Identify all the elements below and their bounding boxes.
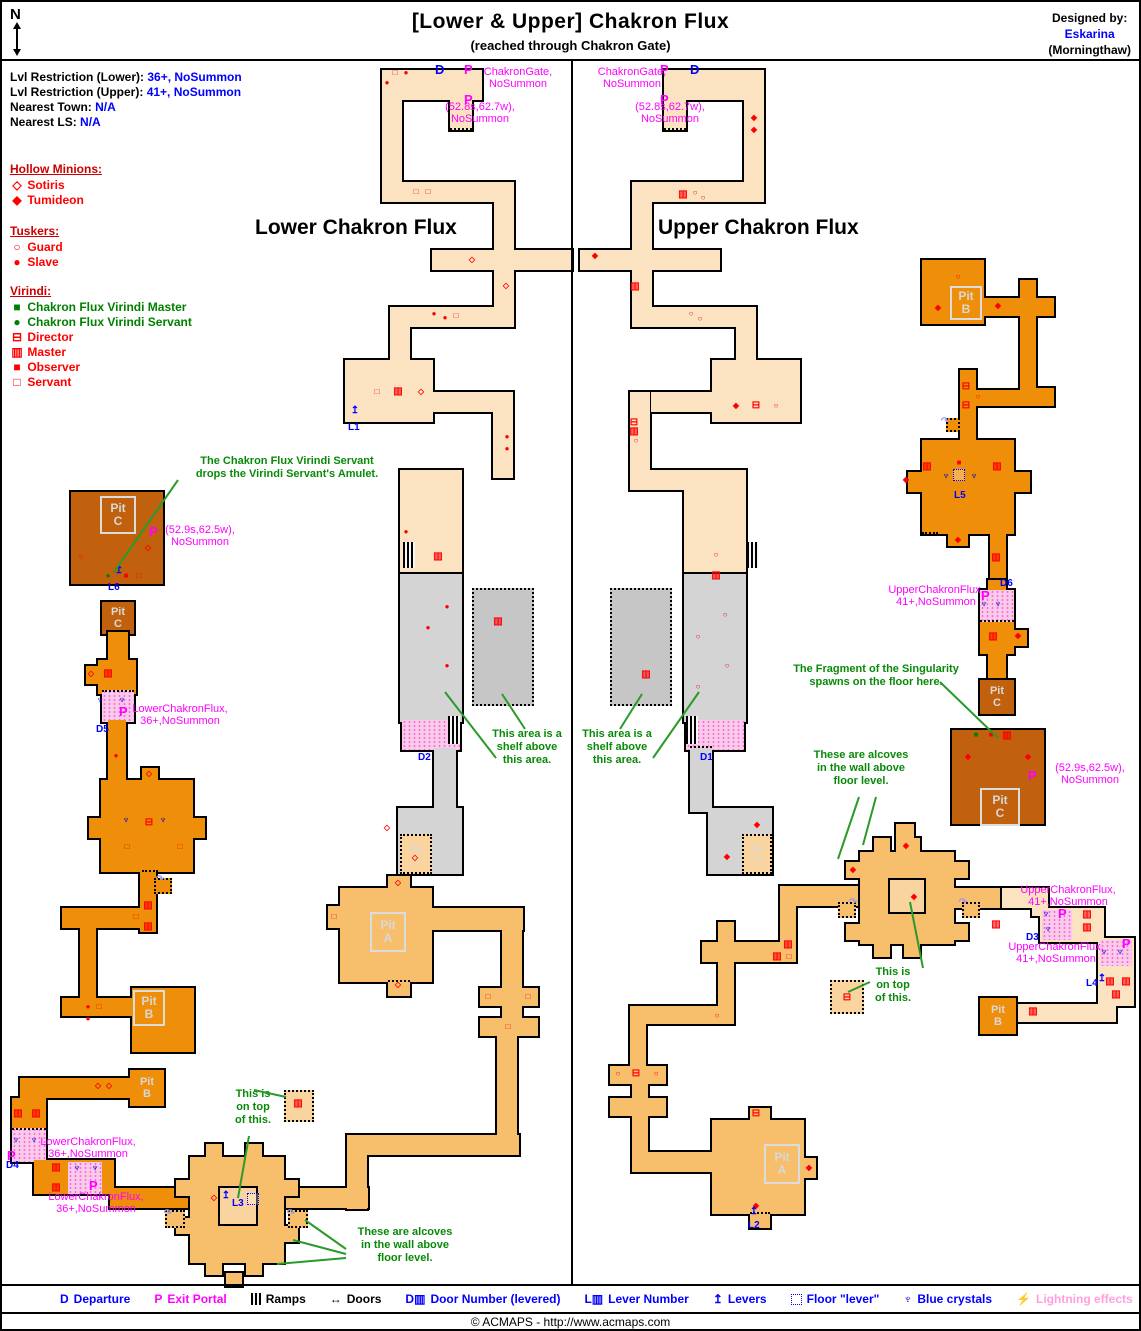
map-page: N [Lower & Upper] Chakron Flux (reached … (0, 0, 1141, 1331)
floor-lever-icon (247, 1193, 259, 1205)
exit-portal-marker: P (1058, 906, 1067, 921)
monster-marker: ▥ (772, 952, 781, 962)
pit-room-label: PitA (764, 1144, 800, 1184)
symbol-legend-label: Departure (74, 1292, 131, 1306)
map-floor-segment (684, 470, 746, 576)
lever-icon: ↥ (115, 566, 123, 576)
monster-marker: ○ (725, 662, 730, 670)
ramps-icon (251, 1293, 261, 1305)
monster-marker: ◇ (384, 824, 390, 832)
symbol-legend-item: ♆Blue crystals (903, 1292, 992, 1306)
monster-marker: ● (505, 433, 510, 441)
map-floor-segment (632, 307, 756, 327)
symbol-legend-label: Lever Number (608, 1292, 689, 1306)
monster-marker: ● (404, 528, 409, 536)
map-id-label: D4 (6, 1160, 19, 1171)
footer-divider-bottom (2, 1312, 1139, 1314)
monster-marker: ◇ (469, 256, 475, 264)
symbol-legend-label: Exit Portal (167, 1292, 226, 1306)
door-dots (664, 128, 686, 130)
blue-crystal-icon: ♆ (96, 696, 104, 707)
map-annotation: The Chakron Flux Virindi Servantdrops th… (180, 455, 394, 481)
monster-marker: ◇ (395, 879, 401, 887)
map-id-label: L3 (232, 1198, 244, 1209)
map-id-label: L2 (748, 1220, 760, 1231)
monster-marker: □ (486, 993, 491, 1001)
monster-marker: ▥ (1082, 923, 1091, 933)
door-dots (102, 690, 134, 692)
monster-marker: ● (443, 314, 448, 322)
ramp-curl-icon: ↷ (164, 1209, 172, 1219)
monster-marker: ⊟ (632, 1069, 640, 1079)
door-number-levered--icon: D▥ (405, 1292, 425, 1306)
monster-marker: ○ (693, 189, 698, 197)
monster-marker: ▥ (1121, 977, 1130, 987)
symbol-legend-item: ↔Doors (330, 1292, 382, 1306)
monster-marker: ▥ (988, 632, 997, 642)
symbol-legend-item: D▥Door Number (levered) (405, 1292, 560, 1306)
map-floor-segment (80, 908, 96, 1004)
ramp-curl-icon: ↷ (156, 875, 164, 885)
monster-marker: ▥ (1111, 990, 1120, 1000)
monster-marker: □ (178, 843, 183, 851)
monster-marker: □ (375, 388, 380, 396)
monster-marker: ○ (701, 194, 706, 202)
map-annotation: These are alcovesin the wall abovefloor … (802, 749, 920, 788)
monster-marker: ● (432, 310, 437, 318)
blue-crystal-icon: ♆ (12, 1136, 20, 1147)
door-dots (690, 746, 712, 748)
map-floor-segment (191, 818, 205, 838)
monster-marker: ▥ (1028, 1007, 1037, 1017)
ramp-curl-icon: ↷ (959, 898, 967, 908)
monster-marker: ● (86, 1015, 91, 1023)
monster-marker: ○ (696, 683, 701, 691)
monster-marker: ▥ (630, 282, 639, 292)
monster-marker: ▥ (922, 462, 931, 472)
monster-marker: ⊟ (752, 401, 760, 411)
map-floor-segment (952, 862, 968, 878)
blue-crystal-icon: ♆ (1042, 910, 1050, 921)
blue-crystals-icon: ♆ (903, 1292, 912, 1306)
monster-marker: □ (393, 69, 398, 77)
monster-marker: ▥ (992, 462, 1001, 472)
monster-marker: ◇ (211, 1194, 217, 1202)
map-annotation: This area is ashelf abovethis area. (483, 728, 571, 767)
map-floor-segment (89, 818, 103, 838)
blue-crystal-icon: ♆ (1044, 925, 1052, 936)
map-id-label: L5 (954, 490, 966, 501)
map-floor-segment (632, 1152, 724, 1172)
monster-marker: ⊟ (962, 401, 970, 411)
monster-marker: ● (505, 445, 510, 453)
monster-marker: ⊟ (145, 818, 153, 828)
symbol-legend-label: Floor "lever" (807, 1292, 880, 1306)
monster-marker: ○ (774, 402, 779, 410)
portal-label: UpperChakronFlux,41+,NoSummon (1020, 884, 1116, 908)
floor-lever-icon (953, 469, 965, 481)
door-dots (142, 870, 158, 872)
monster-marker: ■ (989, 731, 994, 739)
exit-portal-marker: P (464, 62, 473, 77)
pit-room-label: PitC (100, 496, 136, 534)
map-floor-segment (952, 924, 968, 940)
symbol-legend-item: ⚡Lightning effects (1016, 1292, 1133, 1306)
monster-marker: ◆ (903, 476, 909, 484)
pit-room-label: PitC (980, 680, 1014, 714)
monster-marker: ■ (974, 731, 979, 739)
monster-marker: ◆ (592, 252, 598, 260)
map-floor-segment (390, 327, 410, 362)
map-floor-segment (431, 392, 495, 412)
map-divider (571, 59, 573, 1284)
pit-room-label: PitB (130, 1070, 164, 1106)
departure-icon: D (60, 1292, 69, 1306)
map-annotation: This ison topof this. (228, 1088, 278, 1127)
symbol-legend-item: PExit Portal (154, 1292, 226, 1306)
monster-marker: ◇ (106, 1082, 112, 1090)
symbol-legend-label: Blue crystals (917, 1292, 992, 1306)
pit-room-label: PitA (742, 838, 772, 872)
monster-marker: ◆ (995, 302, 1001, 310)
monster-marker: ▥ (13, 1109, 22, 1119)
copyright-text: © ACMAPS - http://www.acmaps.com (2, 1315, 1139, 1329)
monster-marker: □ (787, 953, 792, 961)
monster-marker: ▥ (293, 1099, 302, 1109)
monster-marker: ■ (124, 572, 129, 580)
map-floor-segment (908, 472, 924, 492)
monster-marker: ▥ (1105, 977, 1114, 987)
monster-marker: ● (86, 1003, 91, 1011)
blue-crystal-icon: ♆ (970, 472, 978, 483)
map-floor-segment (382, 182, 514, 202)
ramp-icon (747, 542, 759, 568)
monster-marker: □ (134, 913, 139, 921)
map-floor-segment (497, 1018, 517, 1150)
map-annotation: This area is ashelf abovethis area. (573, 728, 661, 767)
map-floor-segment (400, 574, 462, 722)
exit-portal-marker: P (149, 524, 158, 539)
monster-marker: □ (137, 572, 142, 580)
monster-marker: ▥ (711, 571, 720, 581)
map-id-label: D1 (700, 752, 713, 763)
monster-marker: ● (106, 572, 111, 580)
exit-portal-icon: P (154, 1292, 162, 1306)
symbol-legend-label: Doors (347, 1292, 382, 1306)
monster-marker: ▥ (641, 670, 650, 680)
door-dots (450, 128, 472, 130)
map-floor-segment (246, 1261, 262, 1275)
monster-marker: ▥ (1002, 731, 1011, 741)
ramp-icon (686, 716, 698, 744)
map-floor-segment (1014, 472, 1030, 492)
lever-icon: ↥ (1098, 974, 1106, 984)
monster-marker: ◇ (145, 544, 151, 552)
map-id-label: D6 (1000, 578, 1013, 589)
monster-marker: ○ (976, 393, 981, 401)
monster-marker: ▥ (143, 901, 152, 911)
map-annotation: This ison topof this. (866, 966, 920, 1005)
monster-marker: ◇ (88, 670, 94, 678)
departure-marker: D (690, 62, 699, 77)
lever-icon: ↥ (222, 1191, 230, 1201)
map-floor-segment (922, 440, 1014, 534)
monster-marker: ◆ (733, 402, 739, 410)
monster-marker: ○ (715, 1012, 720, 1020)
blue-crystal-icon: ♆ (122, 816, 130, 827)
portal-label: UpperChakronFlux,41+,NoSummon (888, 584, 984, 608)
monster-marker: ● (445, 603, 450, 611)
pit-room-label: PitB (980, 998, 1016, 1034)
map-floor-segment (246, 1144, 262, 1159)
monster-marker: ● (385, 79, 390, 87)
monster-marker: ○ (723, 611, 728, 619)
monster-marker: ● (426, 624, 431, 632)
map-floor-segment (282, 1180, 298, 1196)
blue-crystal-icon: ♆ (73, 1164, 81, 1175)
symbol-legend-label: Lightning effects (1036, 1292, 1133, 1306)
monster-marker: ◆ (751, 126, 757, 134)
map-floor-segment (712, 360, 800, 422)
door-dots (12, 1128, 46, 1130)
map-raised-area (472, 588, 534, 706)
map-raised-area (610, 588, 672, 706)
portal-label: (52.9s,62.5w),NoSummon (1042, 762, 1138, 786)
map-id-label: D2 (418, 752, 431, 763)
symbol-legend-label: Ramps (266, 1292, 306, 1306)
map-floor-segment (206, 1144, 222, 1159)
monster-marker: ◆ (806, 1164, 812, 1172)
monster-marker: ◆ (965, 753, 971, 761)
monster-marker: ◇ (418, 388, 424, 396)
portal-label: LowerChakronFlux,36+,NoSummon (132, 703, 228, 727)
monster-marker: ▥ (433, 552, 442, 562)
portal-label: LowerChakronFlux,36+,NoSummon (48, 1191, 144, 1215)
pit-room-label: PitB (133, 990, 165, 1026)
portal-label: UpperChakronFlux,41+,NoSummon (1008, 941, 1104, 965)
map-floor-segment (282, 1226, 298, 1242)
symbol-legend-bar: DDeparturePExit PortalRamps↔DoorsD▥Door … (2, 1286, 1139, 1312)
monster-marker: ▥ (143, 922, 152, 932)
symbol-legend-item: Ramps (251, 1292, 306, 1306)
monster-marker: ⊟ (962, 382, 970, 392)
map-floor-segment (702, 942, 796, 962)
monster-marker: □ (426, 188, 431, 196)
map-floor-segment (206, 1261, 222, 1275)
map-floor-segment (904, 942, 920, 957)
monster-marker: ○ (714, 551, 719, 559)
lever-icon: ↥ (750, 1207, 758, 1217)
blue-crystal-icon: ♆ (30, 1136, 38, 1147)
monster-marker: ■ (957, 459, 962, 467)
monster-marker: ◆ (850, 866, 856, 874)
monster-marker: ○ (696, 633, 701, 641)
monster-marker: ⊟ (843, 993, 851, 1003)
map-floor-segment (874, 838, 890, 854)
monster-marker: ◆ (935, 304, 941, 312)
map-floor-segment (502, 922, 522, 1032)
monster-marker: ● (114, 752, 119, 760)
monster-marker: ▥ (393, 387, 402, 397)
pit-room-label: PitC (102, 602, 134, 634)
map-floor-segment (874, 942, 890, 957)
monster-marker: ○ (654, 1070, 659, 1078)
monster-marker: ◆ (911, 893, 917, 901)
monster-marker: ○ (616, 1070, 621, 1078)
map-id-label: D5 (96, 724, 109, 735)
floor-lever-icon (791, 1294, 802, 1305)
map-annotation: These are alcovesin the wall abovefloor … (343, 1226, 467, 1265)
doors-icon: ↔ (330, 1292, 342, 1306)
levers-icon: ↥ (713, 1292, 723, 1306)
map-floor-segment (632, 182, 764, 202)
monster-marker: □ (454, 312, 459, 320)
monster-marker: ▥ (991, 920, 1000, 930)
monster-marker: ▥ (678, 190, 687, 200)
monster-marker: ▥ (31, 1109, 40, 1119)
exit-portal-marker: P (1122, 936, 1131, 951)
door-dots (980, 620, 1014, 622)
monster-marker: ○ (698, 315, 703, 323)
ramp-curl-icon: ↷ (941, 417, 949, 427)
monster-marker: ◆ (955, 536, 961, 544)
blue-crystal-icon: ♆ (994, 600, 1002, 611)
lightning-effects-icon: ⚡ (1016, 1292, 1031, 1306)
monster-marker: ◇ (146, 770, 152, 778)
monster-marker: ▥ (991, 553, 1000, 563)
map-annotation: The Fragment of the Singularityspawns on… (776, 663, 976, 689)
door-dots (980, 714, 1014, 716)
map-floor-segment (846, 924, 862, 940)
monster-marker: ◆ (903, 842, 909, 850)
map-floor-segment (347, 1135, 519, 1155)
symbol-legend-item: L▥Lever Number (584, 1292, 688, 1306)
map-floor-segment (736, 327, 756, 362)
monster-marker: ○ (689, 310, 694, 318)
monster-marker: ◇ (395, 981, 401, 989)
lever-icon: ↥ (351, 406, 359, 416)
blue-crystal-icon: ♆ (91, 1164, 99, 1175)
symbol-legend-item: DDeparture (60, 1292, 130, 1306)
monster-marker: ◆ (1015, 632, 1021, 640)
portal-label: LowerChakronFlux,36+,NoSummon (40, 1136, 136, 1160)
monster-marker: ▥ (103, 669, 112, 679)
symbol-legend-item: ↥Levers (713, 1292, 767, 1306)
monster-marker: □ (526, 993, 531, 1001)
symbol-legend-label: Levers (728, 1292, 767, 1306)
portal-label: (52.9s,62.5w),NoSummon (160, 524, 240, 548)
map-id-label: L6 (108, 582, 120, 593)
map-id-label: L1 (348, 422, 360, 433)
monster-marker: ▥ (783, 940, 792, 950)
map-floor-segment (176, 1180, 192, 1196)
ramp-curl-icon: ↷ (849, 898, 857, 908)
monster-marker: ○ (956, 273, 961, 281)
symbol-legend-item: Floor "lever" (791, 1292, 880, 1306)
portal-label: ChakronGate,NoSummon (594, 66, 670, 90)
pit-room-label: PitA (370, 912, 406, 952)
monster-marker: ◆ (724, 853, 730, 861)
monster-marker: ◆ (751, 114, 757, 122)
map-floor-segment (493, 392, 513, 478)
monster-marker: ● (445, 662, 450, 670)
pit-room-label: PitC (980, 788, 1020, 826)
monster-marker: ◇ (95, 1082, 101, 1090)
monster-marker: ◇ (412, 854, 418, 862)
symbol-legend-label: Door Number (levered) (430, 1292, 560, 1306)
map-floor-segment (1020, 388, 1054, 406)
map-floor-segment (684, 574, 746, 722)
map-id-label: L4 (1086, 978, 1098, 989)
monster-marker: □ (332, 913, 337, 921)
monster-marker: ● (404, 69, 409, 77)
pit-room-label: PitB (950, 286, 982, 320)
portal-label: (52.8s,62.7w),NoSummon (630, 101, 710, 125)
monster-marker: □ (506, 1023, 511, 1031)
lever-number-icon: L▥ (584, 1292, 603, 1306)
map-floor-segment (434, 748, 456, 812)
monster-marker: ▥ (1082, 910, 1091, 920)
exit-portal-marker: P (1028, 768, 1037, 783)
portal-label: (52.8s,62.7w),NoSummon (440, 101, 520, 125)
monster-marker: ⊟ (752, 1109, 760, 1119)
door-dots (922, 532, 938, 534)
monster-marker: □ (97, 1003, 102, 1011)
monster-marker: ▥ (51, 1163, 60, 1173)
portal-label: ChakronGate,NoSummon (480, 66, 556, 90)
monster-marker: ○ (79, 553, 84, 561)
ramp-curl-icon: ↷ (287, 1209, 295, 1219)
blue-crystal-icon: ♆ (159, 816, 167, 827)
ramp-icon (403, 542, 415, 568)
exit-portal-marker: P (119, 704, 128, 719)
monster-marker: ◇ (503, 282, 509, 290)
map-floor-segment (651, 392, 715, 412)
monster-marker: ◆ (1025, 753, 1031, 761)
map-floor-segment (390, 307, 514, 327)
monster-marker: □ (414, 188, 419, 196)
blue-crystal-icon: ♆ (942, 472, 950, 483)
monster-marker: ◆ (754, 821, 760, 829)
map-raised-area (888, 878, 926, 914)
monster-marker: □ (125, 843, 130, 851)
monster-marker: ○ (634, 437, 639, 445)
ramp-icon (448, 716, 460, 744)
monster-marker: ▥ (493, 617, 502, 627)
departure-marker: D (435, 62, 444, 77)
